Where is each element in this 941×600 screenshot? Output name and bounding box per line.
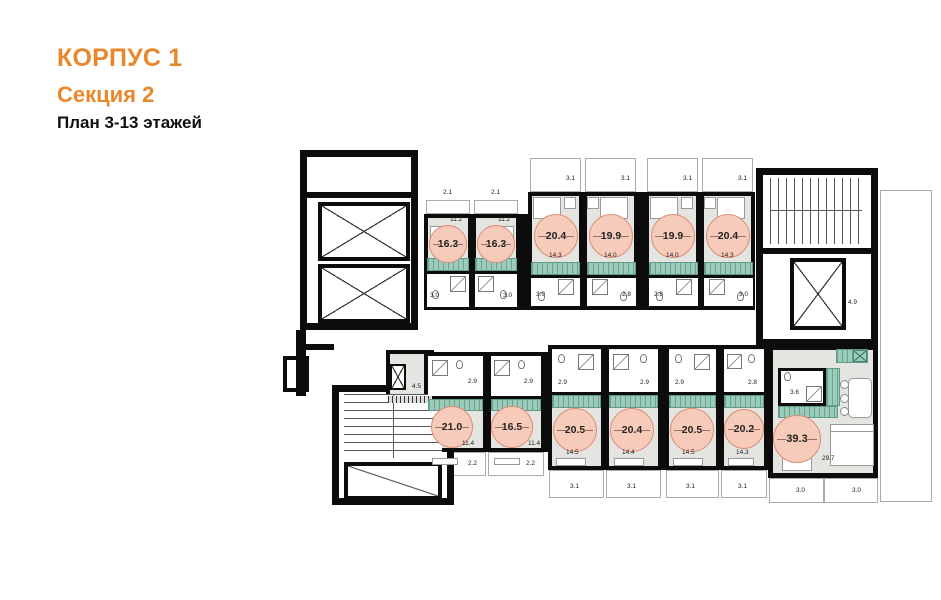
area-label: 20.4 xyxy=(546,230,566,242)
unit-area-badge: 20.5 xyxy=(670,408,714,452)
room-dim-label: 14.4 xyxy=(622,450,635,457)
chair-icon xyxy=(840,380,849,389)
shower-icon xyxy=(494,360,510,376)
balcony xyxy=(474,200,518,214)
kitchen-strip xyxy=(609,395,658,408)
area-label: 20.5 xyxy=(682,424,702,436)
bath-dim-label: 3.0 xyxy=(536,292,545,299)
unit-area-badge: 20.5 xyxy=(553,408,597,452)
utility-area-label: 4.5 xyxy=(412,384,421,391)
chair-icon xyxy=(840,394,849,403)
bath-dim-label: 2.8 xyxy=(654,292,663,299)
bath-dim-label: 3.6 xyxy=(790,390,799,397)
room-dim-label: 11.2 xyxy=(450,217,462,224)
stair-divider xyxy=(393,394,394,458)
bath-dim-label: 3.0 xyxy=(739,292,748,299)
bath-dim-label: 2.8 xyxy=(622,292,631,299)
washer xyxy=(564,197,576,209)
bath-dim-label: 2.9 xyxy=(558,380,567,387)
party-wall xyxy=(660,345,666,470)
shower-icon xyxy=(676,279,692,295)
sofa xyxy=(494,458,520,465)
room-dim-label: 14.5 xyxy=(566,450,579,457)
kitchen-strip xyxy=(531,262,580,275)
core-wall xyxy=(307,192,411,198)
balcony-dim-label: 2.1 xyxy=(443,190,452,197)
toilet-icon xyxy=(456,360,463,369)
balcony-dim-label: 3.1 xyxy=(686,484,695,491)
radiator-grille-icon xyxy=(388,396,432,403)
shower-icon xyxy=(478,276,494,292)
washer xyxy=(681,197,693,209)
area-label: 20.5 xyxy=(565,424,585,436)
washer xyxy=(704,197,716,209)
floor-plan-page: КОРПУС 1 Секция 2 План 3-13 этажей 4.5 2… xyxy=(0,0,941,600)
balcony-dim-label: 2.1 xyxy=(491,190,500,197)
balcony-dim-label: 2.2 xyxy=(468,461,477,468)
kitchen-strip xyxy=(552,395,601,408)
party-wall xyxy=(543,352,549,452)
corridor-wall xyxy=(296,344,334,350)
sofa xyxy=(673,458,703,466)
shower-icon xyxy=(432,360,448,376)
area-label: 20.4 xyxy=(622,424,642,436)
room-dim-label: 14.0 xyxy=(666,253,679,260)
toilet-icon xyxy=(675,354,682,363)
room-dim-label: 29.7 xyxy=(822,456,835,463)
page-title-plan: План 3-13 этажей xyxy=(57,113,202,133)
area-label: 16.3 xyxy=(486,238,506,250)
washer xyxy=(587,197,599,209)
elevator-shaft-icon xyxy=(318,264,410,323)
area-label: 16.3 xyxy=(438,238,458,250)
area-label: 16.5 xyxy=(502,421,522,433)
sofa xyxy=(614,458,644,466)
left-facade-wall xyxy=(296,330,306,396)
stairs-icon xyxy=(770,178,862,244)
stair-landing-line xyxy=(770,210,862,211)
page-title-building: КОРПУС 1 xyxy=(57,44,182,73)
unit-area-badge: 20.4 xyxy=(610,408,654,452)
toilet-icon xyxy=(748,354,755,363)
room-dim-label: 14.0 xyxy=(604,253,617,260)
shower-icon xyxy=(592,279,608,295)
shower-icon xyxy=(727,354,742,369)
sink-icon xyxy=(853,350,867,362)
unit-area-badge: 20.2 xyxy=(724,409,764,449)
toilet-icon xyxy=(640,354,647,363)
kitchen-column xyxy=(826,368,840,406)
kitchen-strip xyxy=(704,262,753,275)
bath-dim-label: 3.0 xyxy=(430,293,439,300)
room-dim-label: 14.3 xyxy=(549,253,562,260)
shower-icon xyxy=(613,354,629,370)
room-dim-label: 14.3 xyxy=(736,450,749,457)
area-label: 39.3 xyxy=(786,433,807,445)
kitchen-strip xyxy=(587,262,636,275)
area-label: 20.4 xyxy=(718,230,738,242)
core-wall xyxy=(763,248,871,254)
ramp-room xyxy=(344,462,442,500)
bath-dim-label: 2.9 xyxy=(524,379,533,386)
right-facade-outline xyxy=(880,190,932,502)
utility-shaft-icon xyxy=(390,364,406,390)
shower-icon xyxy=(806,386,822,402)
area-label: 20.2 xyxy=(734,423,754,435)
balcony-dim-label: 3.1 xyxy=(738,484,747,491)
balcony-dim-label: 3.1 xyxy=(627,484,636,491)
page-title-section: Секция 2 xyxy=(57,82,154,108)
balcony-dim-label: 3.1 xyxy=(570,484,579,491)
room-dim-label: 11.2 xyxy=(498,217,510,224)
balcony-dim-label: 3.1 xyxy=(683,176,692,183)
unit-area-badge: 16.3 xyxy=(429,225,467,263)
balcony-dim-label: 3.0 xyxy=(852,488,861,495)
shower-icon xyxy=(709,279,725,295)
shower-icon xyxy=(578,354,594,370)
sofa xyxy=(432,458,458,465)
unit-area-badge: 39.3 xyxy=(773,415,821,463)
bed-pillow xyxy=(830,424,874,432)
area-label: 19.9 xyxy=(601,230,621,242)
sofa xyxy=(556,458,586,466)
balcony-dim-label: 2.2 xyxy=(526,461,535,468)
sofa xyxy=(728,458,754,466)
kitchen-strip xyxy=(724,395,764,408)
elevator-shaft-icon xyxy=(790,258,846,330)
toilet-icon xyxy=(784,372,791,381)
area-label: 19.9 xyxy=(663,230,683,242)
party-wall xyxy=(520,214,528,310)
area-label: 21.0 xyxy=(442,421,462,433)
kitchen-strip xyxy=(649,262,698,275)
room-dim-label: 14.5 xyxy=(682,450,695,457)
bath-dim-label: 3.0 xyxy=(503,293,512,300)
balcony-dim-label: 3.1 xyxy=(621,176,630,183)
toilet-icon xyxy=(558,354,565,363)
shower-icon xyxy=(450,276,466,292)
room-dim-label: 14.3 xyxy=(721,253,734,260)
elevator-shaft-icon xyxy=(318,202,410,261)
toilet-icon xyxy=(518,360,525,369)
bath-dim-label: 2.9 xyxy=(640,380,649,387)
kitchen-strip xyxy=(669,395,716,408)
bath-dim-label: 2.9 xyxy=(675,380,684,387)
chair-icon xyxy=(840,407,849,416)
room-dim-label: 11.4 xyxy=(528,441,540,448)
dining-table xyxy=(848,378,872,418)
balcony xyxy=(824,478,878,503)
bath-dim-label: 2.8 xyxy=(748,380,757,387)
balcony xyxy=(426,200,470,214)
unit-area-badge: 16.5 xyxy=(491,406,533,448)
party-wall xyxy=(638,192,645,310)
lobby-dim-label: 4.9 xyxy=(848,300,857,307)
shower-icon xyxy=(558,279,574,295)
shower-icon xyxy=(694,354,710,370)
room-dim-label: 11.4 xyxy=(462,441,474,448)
bath-dim-label: 2.9 xyxy=(468,379,477,386)
unit-area-badge: 16.3 xyxy=(477,225,515,263)
balcony-dim-label: 3.1 xyxy=(566,176,575,183)
balcony-dim-label: 3.0 xyxy=(796,488,805,495)
balcony-dim-label: 3.1 xyxy=(738,176,747,183)
